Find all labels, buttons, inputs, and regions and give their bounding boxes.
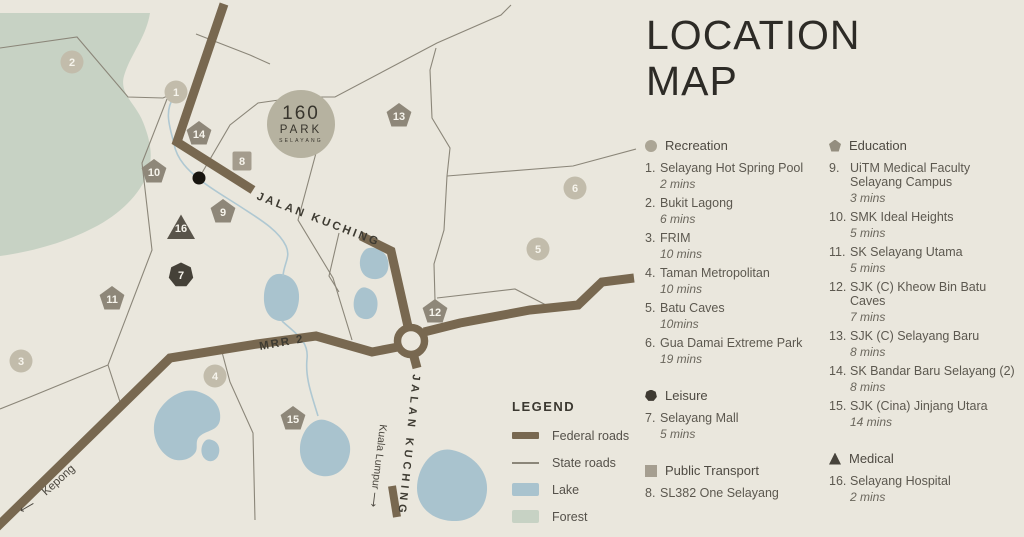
poi-number: 8. xyxy=(645,486,660,500)
category-label: Leisure xyxy=(665,388,708,403)
map-marker-16: 16 xyxy=(167,215,195,240)
poi-item: 12.SJK (C) Kheow Bin Batu Caves7 mins xyxy=(829,280,1019,324)
poi-body: Selayang Hospital2 mins xyxy=(850,474,951,504)
poi-number: 9. xyxy=(829,161,850,205)
marker-number: 15 xyxy=(287,414,299,426)
poi-body: SJK (Cina) Jinjang Utara14 mins xyxy=(850,399,988,429)
map-marker-11: 11 xyxy=(100,286,125,310)
map-marker-5: 5 xyxy=(527,238,550,261)
poi-number: 1. xyxy=(645,161,660,191)
poi-number: 11. xyxy=(829,245,850,275)
federal-swatch xyxy=(512,432,539,439)
poi-body: SJK (C) Kheow Bin Batu Caves7 mins xyxy=(850,280,1019,324)
poi-body: FRIM10 mins xyxy=(660,231,702,261)
category-label: Medical xyxy=(849,451,894,466)
legend-label: Forest xyxy=(552,510,587,524)
poi-item: 8.SL382 One Selayang xyxy=(645,486,825,500)
poi-time: 2 mins xyxy=(660,177,803,191)
poi-body: Gua Damai Extreme Park19 mins xyxy=(660,336,802,366)
poi-number: 15. xyxy=(829,399,850,429)
poi-body: Selayang Mall5 mins xyxy=(660,411,739,441)
map-marker-2: 2 xyxy=(61,51,84,74)
poi-name: SJK (C) Selayang Baru xyxy=(850,329,979,343)
legend-row: Forest xyxy=(512,503,640,530)
poi-item: 13.SJK (C) Selayang Baru8 mins xyxy=(829,329,1019,359)
poi-time: 10mins xyxy=(660,317,725,331)
poi-body: SL382 One Selayang xyxy=(660,486,779,500)
marker-number: 7 xyxy=(178,270,184,282)
poi-body: SMK Ideal Heights5 mins xyxy=(850,210,954,240)
marker-number: 10 xyxy=(148,167,160,179)
poi-time: 7 mins xyxy=(850,310,1019,324)
poi-item: 9.UiTM Medical Faculty Selayang Campus3 … xyxy=(829,161,1019,205)
marker-number: 3 xyxy=(18,356,24,368)
category-label: Education xyxy=(849,138,907,153)
marker-number: 9 xyxy=(220,207,226,219)
poi-name: Selayang Mall xyxy=(660,411,739,425)
poi-number: 7. xyxy=(645,411,660,441)
medical-icon xyxy=(829,453,841,465)
map-marker-7: 7 xyxy=(169,263,193,287)
poi-number: 5. xyxy=(645,301,660,331)
lakes xyxy=(154,248,487,521)
marker-number: 8 xyxy=(239,156,245,168)
legend-rows: Federal roadsState roadsLakeForest xyxy=(512,422,640,530)
project-logo: 160 PARK SELAYANG xyxy=(267,90,335,158)
poi-name: SK Selayang Utama xyxy=(850,245,963,259)
marker-number: 1 xyxy=(173,87,179,99)
marker-number: 12 xyxy=(429,307,441,319)
map-marker-4: 4 xyxy=(204,365,227,388)
poi-number: 13. xyxy=(829,329,850,359)
category-leisure: Leisure7.Selayang Mall5 mins xyxy=(645,388,825,441)
poi-name: UiTM Medical Faculty Selayang Campus xyxy=(850,161,1019,189)
marker-number: 11 xyxy=(106,294,118,306)
forest-swatch xyxy=(512,510,539,523)
poi-item: 10.SMK Ideal Heights5 mins xyxy=(829,210,1019,240)
legend-row: Lake xyxy=(512,476,640,503)
category-public-transport: Public Transport8.SL382 One Selayang xyxy=(645,463,825,500)
map-marker-9: 9 xyxy=(211,199,236,223)
recreation-icon xyxy=(645,140,657,152)
marker-number: 4 xyxy=(212,371,219,383)
poi-name: SMK Ideal Heights xyxy=(850,210,954,224)
legend-label: State roads xyxy=(552,456,616,470)
poi-body: Bukit Lagong6 mins xyxy=(660,196,733,226)
poi-body: SK Selayang Utama5 mins xyxy=(850,245,963,275)
map-area: JALAN KUCHING JALAN KUCHING MRR 2 Kepong… xyxy=(0,0,640,537)
category-header: Recreation xyxy=(645,138,825,153)
poi-number: 2. xyxy=(645,196,660,226)
title-line-1: LOCATION xyxy=(646,12,861,58)
poi-time: 5 mins xyxy=(660,427,739,441)
education-icon xyxy=(829,140,841,152)
page-title: LOCATION MAP xyxy=(646,12,861,104)
poi-number: 16. xyxy=(829,474,850,504)
poi-item: 1.Selayang Hot Spring Pool2 mins xyxy=(645,161,825,191)
poi-body: Taman Metropolitan10 mins xyxy=(660,266,770,296)
category-header: Education xyxy=(829,138,1019,153)
poi-number: 4. xyxy=(645,266,660,296)
poi-name: SK Bandar Baru Selayang (2) xyxy=(850,364,1015,378)
poi-number: 10. xyxy=(829,210,850,240)
map-marker-13: 13 xyxy=(387,103,412,127)
map-marker-3: 3 xyxy=(10,350,33,373)
map-marker-15: 15 xyxy=(281,406,306,430)
map-marker-8: 8 xyxy=(233,152,252,171)
poi-time: 6 mins xyxy=(660,212,733,226)
leisure-icon xyxy=(645,390,657,402)
category-header: Public Transport xyxy=(645,463,825,478)
lake-swatch xyxy=(512,483,539,496)
marker-number: 13 xyxy=(393,111,405,123)
poi-name: Batu Caves xyxy=(660,301,725,315)
poi-item: 5.Batu Caves10mins xyxy=(645,301,825,331)
logo-number: 160 xyxy=(282,105,320,123)
poi-item: 3.FRIM10 mins xyxy=(645,231,825,261)
logo-name: PARK xyxy=(280,124,322,136)
poi-number: 3. xyxy=(645,231,660,261)
poi-column-left: Recreation1.Selayang Hot Spring Pool2 mi… xyxy=(645,138,825,505)
poi-time: 5 mins xyxy=(850,226,954,240)
logo-tagline: SELAYANG xyxy=(279,138,323,144)
poi-time: 8 mins xyxy=(850,380,1015,394)
poi-item: 6.Gua Damai Extreme Park19 mins xyxy=(645,336,825,366)
marker-number: 14 xyxy=(193,129,206,141)
legend-row: Federal roads xyxy=(512,422,640,449)
map-marker-1: 1 xyxy=(165,81,188,104)
marker-number: 16 xyxy=(175,223,187,235)
road-label-jalan-kuching: JALAN KUCHING xyxy=(255,191,382,249)
poi-number: 12. xyxy=(829,280,850,324)
poi-time: 3 mins xyxy=(850,191,1019,205)
map-marker-12: 12 xyxy=(423,299,448,323)
poi-body: SJK (C) Selayang Baru8 mins xyxy=(850,329,979,359)
poi-name: Bukit Lagong xyxy=(660,196,733,210)
title-line-2: MAP xyxy=(646,58,861,104)
poi-number: 6. xyxy=(645,336,660,366)
poi-name: SJK (Cina) Jinjang Utara xyxy=(850,399,988,413)
poi-column-right: Education9.UiTM Medical Faculty Selayang… xyxy=(829,138,1019,509)
category-label: Recreation xyxy=(665,138,728,153)
roundabout xyxy=(398,328,425,355)
poi-item: 4.Taman Metropolitan10 mins xyxy=(645,266,825,296)
poi-item: 16.Selayang Hospital2 mins xyxy=(829,474,1019,504)
poi-time: 5 mins xyxy=(850,261,963,275)
poi-number: 14. xyxy=(829,364,850,394)
poi-item: 11.SK Selayang Utama5 mins xyxy=(829,245,1019,275)
category-header: Medical xyxy=(829,451,1019,466)
poi-item: 2.Bukit Lagong6 mins xyxy=(645,196,825,226)
legend-label: Federal roads xyxy=(552,429,629,443)
category-education: Education9.UiTM Medical Faculty Selayang… xyxy=(829,138,1019,429)
legend-heading: LEGEND xyxy=(512,399,640,414)
poi-time: 19 mins xyxy=(660,352,802,366)
poi-time: 10 mins xyxy=(660,282,770,296)
category-medical: Medical16.Selayang Hospital2 mins xyxy=(829,451,1019,504)
poi-time: 2 mins xyxy=(850,490,951,504)
poi-body: Batu Caves10mins xyxy=(660,301,725,331)
poi-name: Gua Damai Extreme Park xyxy=(660,336,802,350)
poi-body: UiTM Medical Faculty Selayang Campus3 mi… xyxy=(850,161,1019,205)
public-transport-icon xyxy=(645,465,657,477)
category-label: Public Transport xyxy=(665,463,759,478)
legend-label: Lake xyxy=(552,483,579,497)
marker-number: 5 xyxy=(535,244,541,256)
poi-body: SK Bandar Baru Selayang (2)8 mins xyxy=(850,364,1015,394)
legend: LEGEND Federal roadsState roadsLakeFores… xyxy=(512,399,640,530)
category-header: Leisure xyxy=(645,388,825,403)
poi-time: 10 mins xyxy=(660,247,702,261)
direction-label-kuala-lumpur: Kuala Lumpur ⟶ xyxy=(367,424,389,509)
poi-item: 15.SJK (Cina) Jinjang Utara14 mins xyxy=(829,399,1019,429)
map-marker-6: 6 xyxy=(564,177,587,200)
marker-number: 6 xyxy=(572,183,578,195)
poi-body: Selayang Hot Spring Pool2 mins xyxy=(660,161,803,191)
poi-time: 14 mins xyxy=(850,415,988,429)
poi-name: Taman Metropolitan xyxy=(660,266,770,280)
project-location-dot xyxy=(193,172,206,185)
poi-item: 7.Selayang Mall5 mins xyxy=(645,411,825,441)
map-marker-14: 14 xyxy=(187,121,212,145)
poi-item: 14.SK Bandar Baru Selayang (2)8 mins xyxy=(829,364,1019,394)
marker-number: 2 xyxy=(69,57,75,69)
poi-time: 8 mins xyxy=(850,345,979,359)
poi-name: Selayang Hospital xyxy=(850,474,951,488)
category-recreation: Recreation1.Selayang Hot Spring Pool2 mi… xyxy=(645,138,825,366)
legend-row: State roads xyxy=(512,449,640,476)
poi-name: FRIM xyxy=(660,231,702,245)
poi-name: Selayang Hot Spring Pool xyxy=(660,161,803,175)
location-map-page: JALAN KUCHING JALAN KUCHING MRR 2 Kepong… xyxy=(0,0,1024,537)
forest-area xyxy=(0,13,151,256)
poi-name: SJK (C) Kheow Bin Batu Caves xyxy=(850,280,1019,308)
poi-name: SL382 One Selayang xyxy=(660,486,779,500)
state-swatch xyxy=(512,462,539,464)
road-label-mrr2: MRR 2 xyxy=(258,333,305,353)
